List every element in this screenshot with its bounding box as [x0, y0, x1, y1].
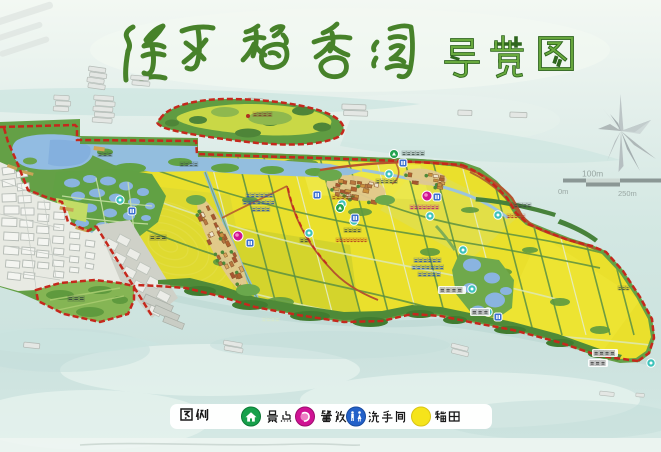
svg-text:250m: 250m — [618, 189, 637, 198]
svg-text:0m: 0m — [558, 187, 568, 196]
svg-text:100m: 100m — [582, 169, 603, 179]
